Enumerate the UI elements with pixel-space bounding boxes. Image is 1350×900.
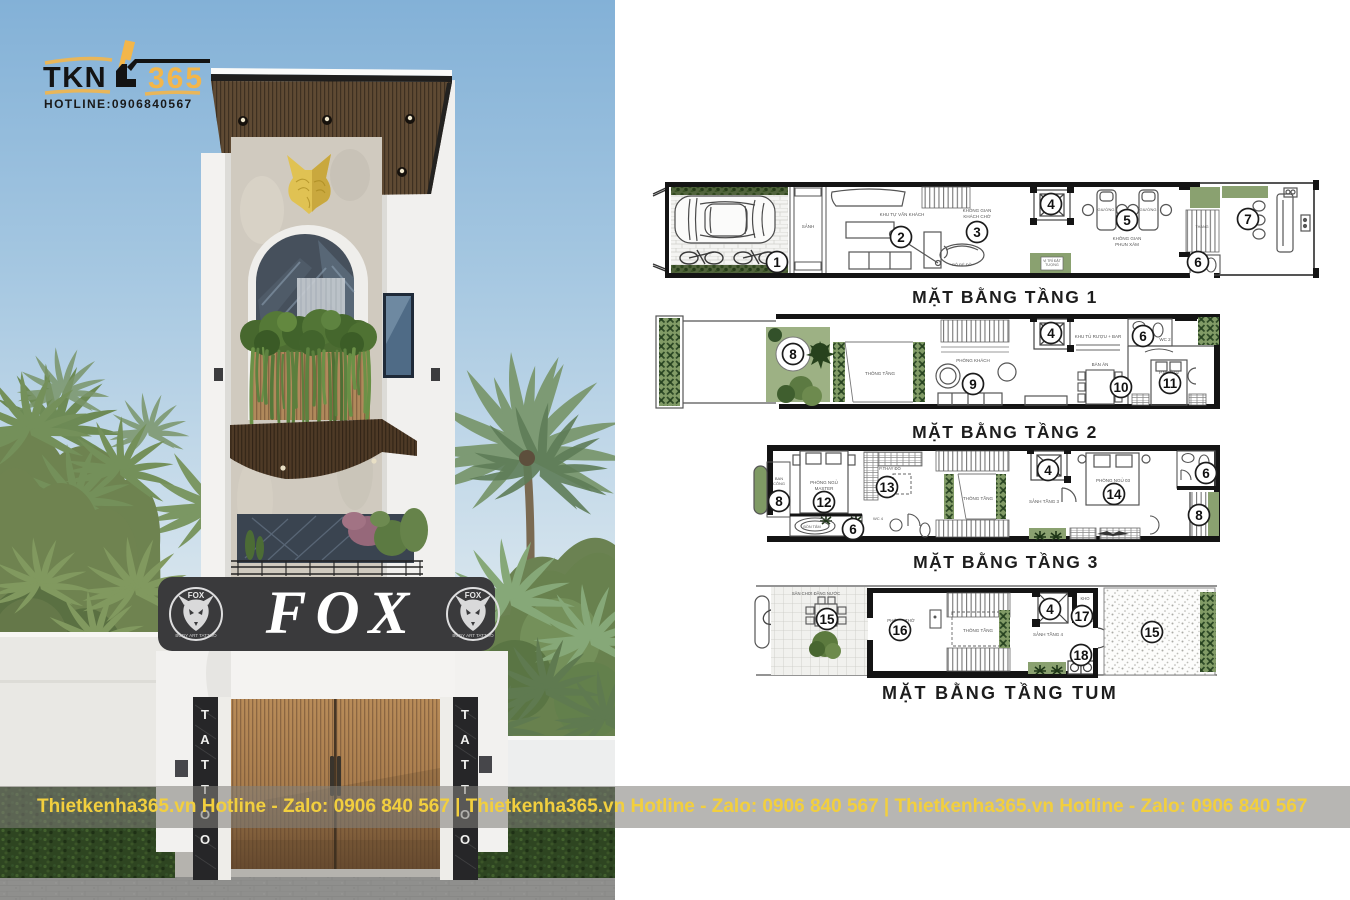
svg-text:PHÒNG KHÁCH: PHÒNG KHÁCH <box>956 357 990 363</box>
svg-text:1: 1 <box>773 255 781 270</box>
svg-text:14: 14 <box>1106 487 1122 502</box>
svg-text:11: 11 <box>1163 376 1178 391</box>
svg-text:4: 4 <box>1047 326 1055 341</box>
svg-text:BODY ART TATTOO: BODY ART TATTOO <box>175 633 217 638</box>
svg-text:4: 4 <box>1046 602 1054 617</box>
svg-text:KHU TỰ VẤN KHÁCH: KHU TỰ VẤN KHÁCH <box>880 211 925 217</box>
svg-text:SẢNH: SẢNH <box>802 223 815 229</box>
svg-text:8: 8 <box>775 494 783 509</box>
svg-text:15: 15 <box>819 612 835 627</box>
svg-text:KHÔNG GIAN: KHÔNG GIAN <box>963 207 992 213</box>
svg-text:16: 16 <box>892 623 908 638</box>
svg-text:SÂN CHƠI ĐẰNG NƯỚC: SÂN CHƠI ĐẰNG NƯỚC <box>792 591 840 596</box>
svg-text:7: 7 <box>1244 212 1252 227</box>
svg-text:8: 8 <box>1195 508 1203 523</box>
svg-text:WC 4: WC 4 <box>873 516 884 521</box>
svg-text:THÔNG TẦNG: THÔNG TẦNG <box>963 495 993 501</box>
svg-text:PHÒNG NGỦ 03: PHÒNG NGỦ 03 <box>1096 477 1131 483</box>
svg-text:12: 12 <box>816 495 831 510</box>
svg-text:T: T <box>461 707 469 722</box>
svg-text:FOX: FOX <box>188 591 205 600</box>
svg-text:O: O <box>460 832 470 847</box>
svg-text:THANG: THANG <box>1195 225 1208 229</box>
svg-text:18: 18 <box>1073 648 1089 663</box>
svg-text:4: 4 <box>1044 463 1052 478</box>
svg-text:KHU TỦ RƯỢU + BAR: KHU TỦ RƯỢU + BAR <box>1075 333 1122 339</box>
svg-text:CÔNG: CÔNG <box>773 481 785 486</box>
svg-text:BỘ ĐỂ ĐỒ: BỘ ĐỂ ĐỒ <box>952 262 972 267</box>
svg-text:5: 5 <box>1123 213 1131 228</box>
svg-text:6: 6 <box>849 522 857 537</box>
svg-text:T: T <box>201 707 209 722</box>
svg-text:KHÁCH CHỜ: KHÁCH CHỜ <box>963 213 991 219</box>
svg-text:HOTLINE:0906840567: HOTLINE:0906840567 <box>44 97 193 111</box>
svg-text:3: 3 <box>973 225 981 240</box>
svg-text:KHÔNG GIAN: KHÔNG GIAN <box>1113 235 1142 241</box>
svg-text:SẢNH TẦNG 3: SẢNH TẦNG 3 <box>1029 498 1059 504</box>
svg-text:MẶT BẰNG TẦNG TUM: MẶT BẰNG TẦNG TUM <box>882 682 1118 703</box>
svg-text:FOX: FOX <box>465 591 482 600</box>
svg-text:GIƯỜNG: GIƯỜNG <box>1139 207 1156 212</box>
svg-text:T: T <box>201 757 209 772</box>
svg-text:O: O <box>200 832 210 847</box>
svg-text:15: 15 <box>1144 625 1160 640</box>
svg-text:6: 6 <box>1194 255 1202 270</box>
svg-text:MASTER: MASTER <box>815 486 835 491</box>
svg-text:THÔNG TẦNG: THÔNG TẦNG <box>865 370 895 376</box>
svg-text:FOX: FOX <box>265 580 418 647</box>
svg-text:10: 10 <box>1113 380 1128 395</box>
svg-text:BỒN TẮM: BỒN TẮM <box>803 524 820 529</box>
svg-text:SẢNH TẦNG 4: SẢNH TẦNG 4 <box>1033 631 1063 637</box>
svg-text:PHÒNG NGỦ: PHÒNG NGỦ <box>810 479 838 485</box>
svg-text:MẶT BẰNG TẦNG 2: MẶT BẰNG TẦNG 2 <box>912 421 1098 442</box>
svg-text:GIƯỜNG: GIƯỜNG <box>1097 207 1114 212</box>
svg-text:BÀN ĂN: BÀN ĂN <box>1092 361 1109 367</box>
svg-text:6: 6 <box>1139 329 1147 344</box>
svg-text:MẶT BẰNG TẦNG 3: MẶT BẰNG TẦNG 3 <box>913 551 1099 572</box>
svg-text:2: 2 <box>897 230 905 245</box>
svg-text:8: 8 <box>789 347 797 362</box>
svg-text:17: 17 <box>1074 609 1089 624</box>
svg-text:TƯỢNG: TƯỢNG <box>1045 263 1059 267</box>
svg-text:MẶT BẰNG TẦNG 1: MẶT BẰNG TẦNG 1 <box>912 286 1098 307</box>
svg-text:6: 6 <box>1202 466 1210 481</box>
svg-text:WC 2: WC 2 <box>1159 337 1171 342</box>
svg-text:A: A <box>460 732 470 747</box>
svg-text:13: 13 <box>879 480 895 495</box>
svg-text:9: 9 <box>969 377 977 392</box>
svg-text:BODY ART TATTOO: BODY ART TATTOO <box>452 633 494 638</box>
svg-text:KHO: KHO <box>1080 596 1090 601</box>
svg-text:A: A <box>200 732 210 747</box>
svg-text:THÔNG TẦNG: THÔNG TẦNG <box>963 627 993 633</box>
svg-text:PHUN XĂM: PHUN XĂM <box>1115 241 1139 247</box>
svg-text:T: T <box>461 757 469 772</box>
svg-text:4: 4 <box>1047 197 1055 212</box>
svg-text:P.THAY ĐỒ: P.THAY ĐỒ <box>879 466 901 471</box>
svg-text:365: 365 <box>148 62 204 95</box>
